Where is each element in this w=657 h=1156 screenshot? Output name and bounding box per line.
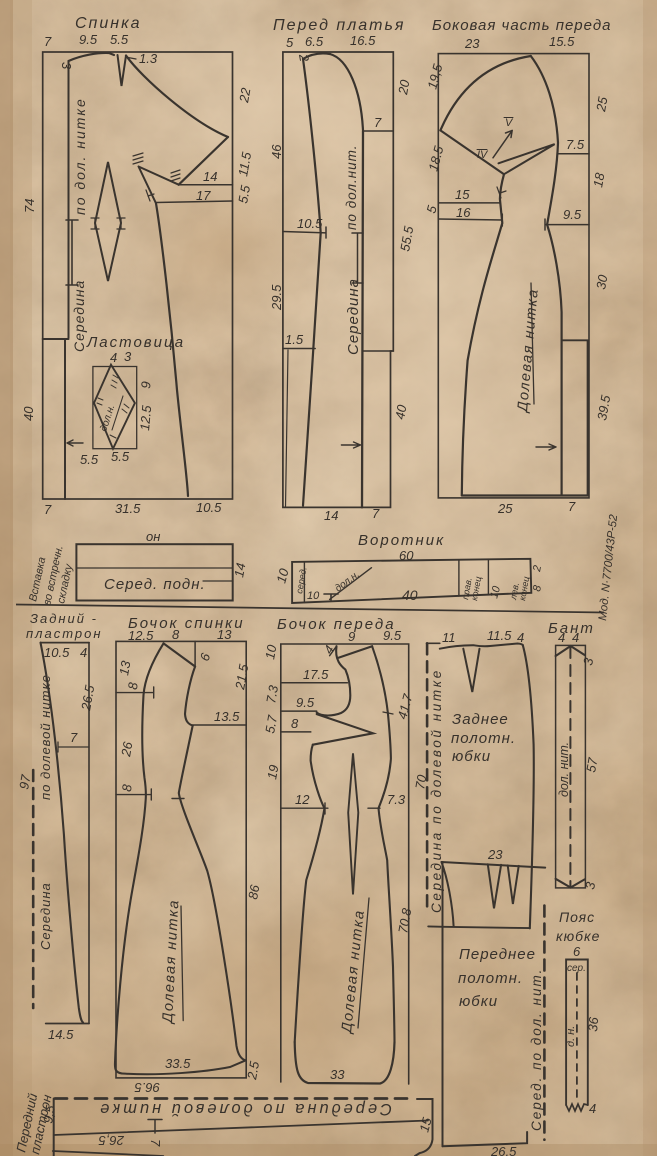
svg-text:Серед. подн.: Серед. подн. xyxy=(104,576,206,593)
svg-text:16: 16 xyxy=(456,205,471,220)
svg-text:74: 74 xyxy=(22,199,37,213)
svg-text:23: 23 xyxy=(487,847,503,862)
svg-text:7: 7 xyxy=(44,502,52,517)
svg-text:7: 7 xyxy=(44,34,52,49)
svg-text:14: 14 xyxy=(324,508,338,523)
svg-text:4: 4 xyxy=(110,350,117,365)
svg-text:1.5: 1.5 xyxy=(285,332,304,347)
svg-text:Спинка: Спинка xyxy=(75,15,142,32)
svg-text:6: 6 xyxy=(573,944,581,959)
svg-text:юбки: юбки xyxy=(459,993,498,1010)
svg-text:96.5: 96.5 xyxy=(134,1080,160,1095)
svg-text:3: 3 xyxy=(59,62,74,70)
svg-text:сер.: сер. xyxy=(567,963,586,974)
svg-text:14.5: 14.5 xyxy=(48,1027,74,1042)
svg-text:33: 33 xyxy=(330,1067,345,1082)
svg-text:19: 19 xyxy=(264,764,281,781)
svg-text:23: 23 xyxy=(464,36,480,51)
svg-text:5.5: 5.5 xyxy=(111,449,130,464)
svg-text:по дол.нит.: по дол.нит. xyxy=(344,144,359,230)
svg-text:7: 7 xyxy=(70,730,78,745)
svg-text:Задний -: Задний - xyxy=(30,611,98,626)
svg-text:33.5: 33.5 xyxy=(165,1056,191,1071)
svg-text:40: 40 xyxy=(21,406,36,421)
svg-text:Бочок переда: Бочок переда xyxy=(277,616,396,633)
svg-text:15.5: 15.5 xyxy=(549,34,575,49)
svg-text:4: 4 xyxy=(572,630,579,645)
svg-text:3: 3 xyxy=(124,349,132,364)
svg-text:7: 7 xyxy=(148,1139,163,1147)
svg-text:29.5: 29.5 xyxy=(269,284,284,311)
svg-text:Заднее: Заднее xyxy=(452,711,509,728)
svg-text:9.5: 9.5 xyxy=(79,32,98,47)
svg-text:дол. нит.: дол. нит. xyxy=(557,742,571,797)
svg-text:Боковая часть переда: Боковая часть переда xyxy=(432,17,611,34)
svg-text:10.5: 10.5 xyxy=(44,645,70,660)
svg-text:14: 14 xyxy=(203,169,217,184)
svg-text:9.5: 9.5 xyxy=(383,628,402,643)
svg-text:6.5: 6.5 xyxy=(305,34,324,49)
svg-text:13: 13 xyxy=(217,627,232,642)
svg-text:17.5: 17.5 xyxy=(303,667,329,682)
svg-text:14: 14 xyxy=(231,562,248,579)
svg-text:26,5: 26,5 xyxy=(490,1144,517,1156)
svg-text:25: 25 xyxy=(497,501,513,516)
svg-text:36: 36 xyxy=(585,1016,601,1032)
svg-text:д. н.: д. н. xyxy=(565,1026,577,1047)
svg-text:16.5: 16.5 xyxy=(350,33,376,48)
svg-text:10.5: 10.5 xyxy=(196,500,222,515)
svg-text:9: 9 xyxy=(348,629,355,644)
svg-text:Ластовица: Ластовица xyxy=(86,334,185,351)
svg-text:11: 11 xyxy=(442,630,456,645)
svg-text:4: 4 xyxy=(589,1101,596,1116)
svg-text:пластрон: пластрон xyxy=(26,626,103,641)
svg-text:7: 7 xyxy=(568,499,576,514)
svg-text:Середина: Середина xyxy=(71,280,87,352)
svg-text:12.5: 12.5 xyxy=(137,404,154,431)
svg-text:15: 15 xyxy=(455,187,470,202)
svg-text:Серед. по дол. нит.: Серед. по дол. нит. xyxy=(529,968,544,1131)
svg-text:7.5: 7.5 xyxy=(566,137,585,152)
svg-text:5.5: 5.5 xyxy=(110,32,129,47)
svg-text:5.5: 5.5 xyxy=(80,452,99,467)
svg-text:по дол. нитке: по дол. нитке xyxy=(72,97,88,215)
svg-text:9.5: 9.5 xyxy=(296,695,315,710)
svg-text:9: 9 xyxy=(138,381,154,390)
svg-text:Середина: Середина xyxy=(345,278,362,355)
svg-text:IV: IV xyxy=(477,149,489,161)
svg-text:юбки: юбки xyxy=(452,748,491,765)
svg-text:Пояс: Пояс xyxy=(559,909,595,925)
svg-text:40: 40 xyxy=(402,587,418,603)
svg-text:полотн.: полотн. xyxy=(451,730,516,747)
svg-text:13.5: 13.5 xyxy=(214,709,240,724)
svg-text:8: 8 xyxy=(291,716,299,731)
svg-text:12: 12 xyxy=(295,792,310,807)
svg-text:4: 4 xyxy=(80,645,87,660)
svg-text:7: 7 xyxy=(372,506,380,521)
svg-text:9.5: 9.5 xyxy=(563,207,582,222)
svg-text:7: 7 xyxy=(374,115,382,130)
svg-text:4: 4 xyxy=(558,630,565,645)
svg-text:Середина по долевой нитке: Середина по долевой нитке xyxy=(97,1100,392,1118)
svg-text:Переднее: Переднее xyxy=(459,946,536,963)
svg-text:46: 46 xyxy=(269,144,284,159)
svg-text:5: 5 xyxy=(286,35,294,50)
svg-text:1.3: 1.3 xyxy=(139,51,158,66)
svg-text:7.3: 7.3 xyxy=(387,792,406,807)
svg-text:Воротник: Воротник xyxy=(358,532,445,549)
svg-text:10: 10 xyxy=(307,590,320,602)
svg-text:он: он xyxy=(146,529,160,544)
svg-text:31.5: 31.5 xyxy=(115,501,141,516)
svg-text:кюбке: кюбке xyxy=(556,928,600,944)
svg-text:Перед платья: Перед платья xyxy=(273,17,405,34)
svg-text:8: 8 xyxy=(172,627,180,642)
svg-text:26,5: 26,5 xyxy=(98,1133,125,1148)
svg-text:Середина: Середина xyxy=(38,882,53,950)
svg-text:11.5: 11.5 xyxy=(487,628,512,643)
svg-text:по долевой нитке: по долевой нитке xyxy=(38,674,53,800)
svg-text:10.5: 10.5 xyxy=(297,216,323,231)
svg-text:полотн.: полотн. xyxy=(458,970,523,987)
